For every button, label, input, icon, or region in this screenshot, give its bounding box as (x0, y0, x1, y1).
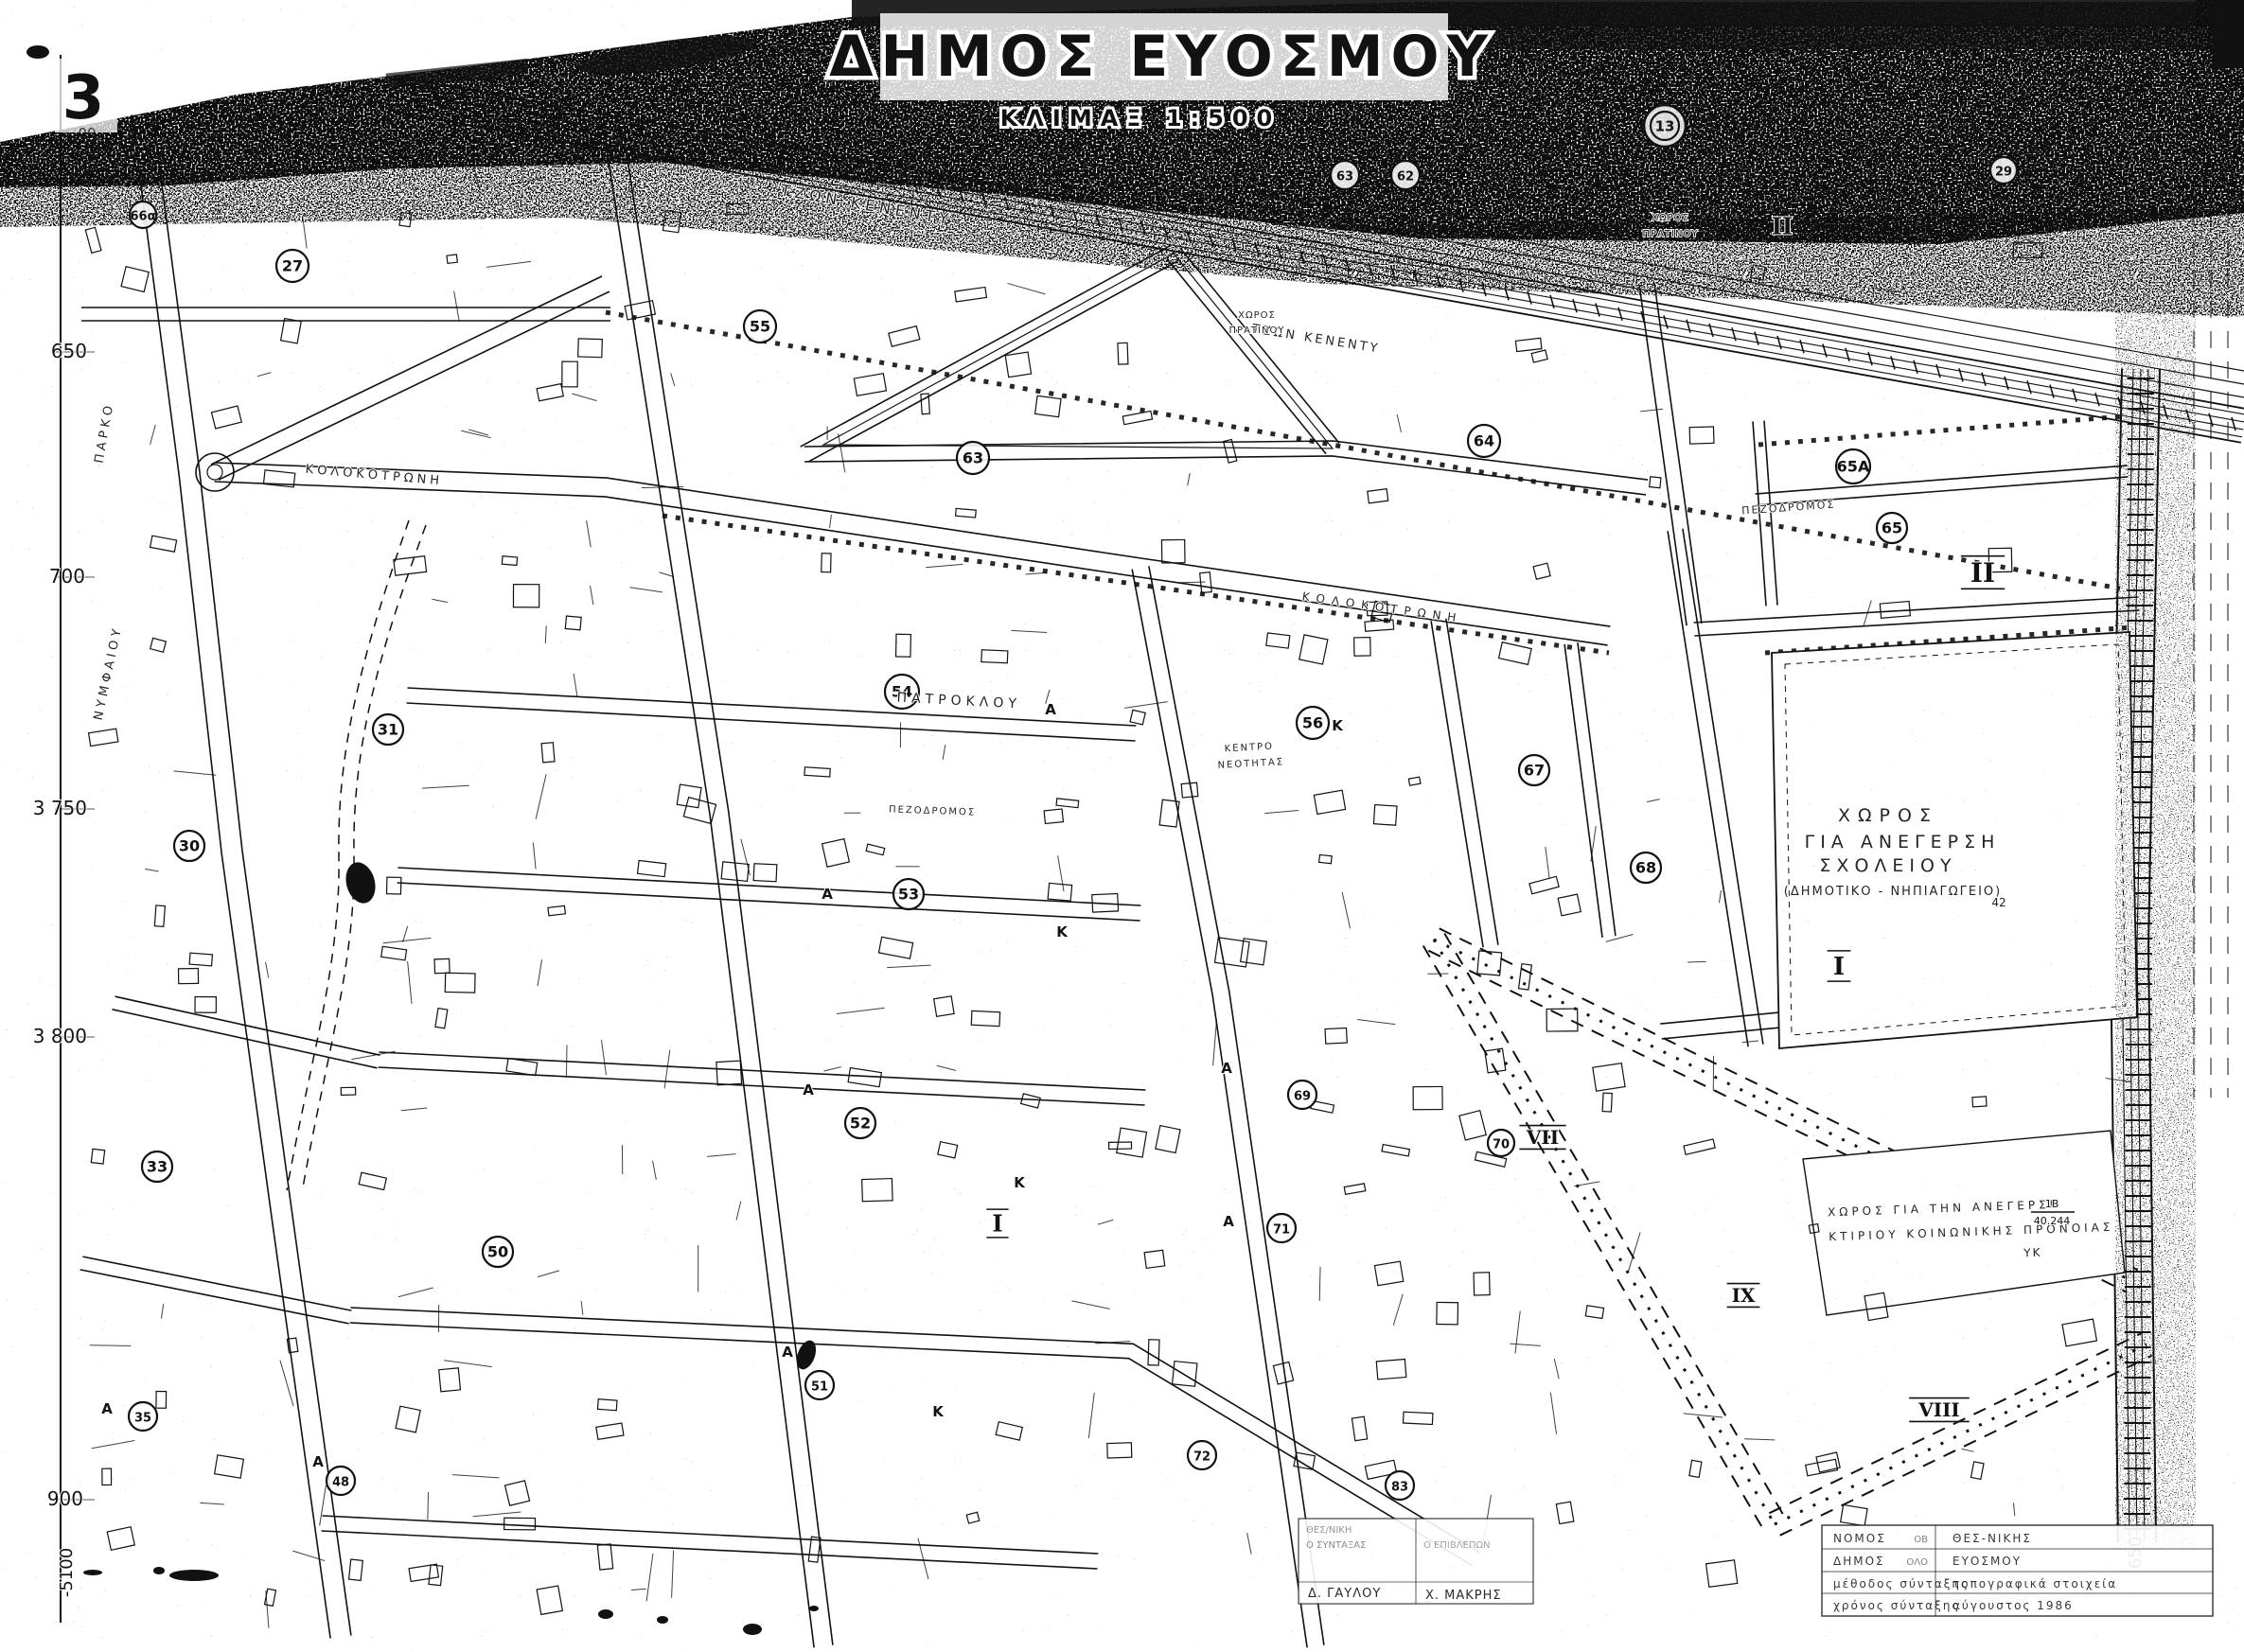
overlay-grain (0, 0, 2244, 1652)
scanned-map-page: 6507003 7503 800900-510065066α2755636229… (0, 0, 2244, 1652)
